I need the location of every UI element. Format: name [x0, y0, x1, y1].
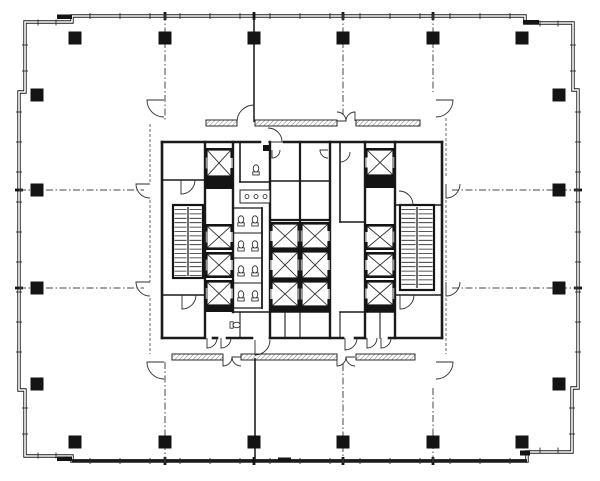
counterweight [297, 260, 299, 271]
elevator-door [365, 260, 367, 270]
door-swing [436, 362, 453, 379]
toilet-fixture [252, 291, 258, 301]
door-swing [147, 362, 164, 379]
door-swing [337, 357, 346, 366]
shaft-wall-poche [270, 308, 330, 312]
restroom-fixtures [230, 165, 270, 328]
toilet-fixture [252, 266, 258, 276]
door-swing [381, 338, 391, 348]
structural-column [31, 282, 44, 295]
structural-column [553, 184, 566, 197]
elevator-door [231, 158, 233, 168]
structural-column [516, 32, 529, 45]
facade-joint-mark [57, 457, 72, 462]
door-swing [436, 100, 453, 117]
elevator-door [328, 260, 330, 270]
structural-column [427, 32, 440, 45]
door-swing [207, 338, 217, 348]
wing-wall [255, 120, 337, 126]
elevator-door [328, 231, 330, 241]
structural-column [553, 282, 566, 295]
shaft-wall-poche [205, 307, 233, 312]
door-swing [237, 105, 254, 122]
structural-column [427, 436, 440, 449]
door-swing [446, 282, 460, 296]
elevator-door [270, 231, 272, 241]
structural-column [337, 32, 350, 45]
counterweight [301, 260, 303, 271]
door-swing [446, 184, 460, 198]
door-swing [337, 112, 346, 121]
toilet-fixture [252, 216, 258, 226]
wing-wall [206, 120, 237, 126]
structural-column [337, 436, 350, 449]
elevator-shaft [205, 280, 233, 307]
toilet-bowl [252, 291, 258, 298]
elevator-shaft [270, 250, 300, 280]
structural-column [31, 378, 44, 391]
structural-column [248, 436, 261, 449]
toilet-fixture [238, 241, 244, 251]
elevator-door [231, 232, 233, 242]
counterweight [297, 289, 299, 300]
toilet-fixture [252, 241, 258, 251]
elevator-shaft [205, 252, 233, 278]
toilet-bowl [238, 216, 244, 223]
structural-column [248, 32, 261, 45]
toilet-bowl [253, 165, 259, 172]
toilet-bowl [252, 266, 258, 273]
door-swing [320, 150, 328, 158]
door-swing [367, 338, 377, 348]
counterweight [392, 157, 394, 168]
door-swing [345, 338, 357, 350]
facade-joint-mark [520, 451, 530, 456]
elevator-shaft [270, 222, 300, 250]
door-swing [268, 128, 282, 142]
toilet-bowl [252, 216, 258, 223]
elevator-shaft [365, 148, 395, 177]
door-swing [223, 357, 232, 366]
door-swing [136, 282, 150, 296]
structural-column [516, 436, 529, 449]
elevator-shaft [300, 250, 330, 280]
door-swing [400, 295, 414, 309]
door-swing [221, 338, 231, 348]
elevator-door [231, 260, 233, 270]
structural-column [553, 89, 566, 102]
structural-column [159, 436, 172, 449]
toilet-bowl [238, 291, 244, 298]
elevator-door [231, 289, 233, 299]
counterweight [392, 232, 394, 243]
door-swing [147, 100, 164, 117]
door-swing [255, 340, 270, 355]
counterweight [392, 260, 394, 271]
exterior-wall-band [72, 459, 527, 462]
toilet-fixture [230, 322, 240, 328]
elevator-shaft [205, 224, 233, 250]
elevator-shaft [365, 280, 395, 307]
floor-plan [0, 0, 600, 481]
elevator-door [365, 289, 367, 299]
toilet-bowl [238, 266, 244, 273]
elevator-shaft [300, 222, 330, 250]
counterweight [297, 231, 299, 242]
structural-column [159, 32, 172, 45]
elevator-door [270, 260, 272, 270]
elevator-door [270, 289, 272, 299]
toilet-bowl [238, 241, 244, 248]
counterweight [392, 288, 394, 299]
shaft-wall-poche [205, 178, 233, 189]
toilet-fixture [253, 165, 259, 175]
door-swing [182, 295, 196, 309]
structural-column [553, 378, 566, 391]
wing-wall [356, 354, 415, 360]
structural-column [69, 436, 82, 449]
facade-joint-mark [57, 15, 72, 20]
door-swing [181, 180, 195, 194]
stair [400, 205, 434, 290]
facade-joint-mark [278, 458, 291, 463]
door-swing [136, 184, 150, 198]
sink-counter [240, 190, 270, 203]
elevator-shaft [365, 252, 395, 278]
counterweight [206, 158, 208, 169]
wing-wall [172, 354, 223, 360]
shaft-wall-poche [263, 145, 269, 151]
stair [173, 205, 203, 278]
elevator-door [365, 232, 367, 242]
structural-column [31, 184, 44, 197]
wing-wall [356, 120, 420, 126]
elevator-door [328, 289, 330, 299]
elevator-shaft [270, 280, 300, 308]
door-swing [346, 357, 355, 366]
floor-plan-svg [0, 0, 600, 481]
counterweight [206, 288, 208, 299]
toilet-bowl [252, 241, 258, 248]
facade-joint-mark [523, 20, 539, 25]
door-swing [346, 112, 355, 121]
elevator-door [365, 158, 367, 168]
structural-column [69, 32, 82, 45]
elevator-shaft [300, 280, 330, 308]
toilet-bowl [233, 322, 240, 328]
door-swing [399, 191, 413, 205]
counterweight [206, 232, 208, 243]
counterweight [301, 231, 303, 242]
toilet-fixture [238, 216, 244, 226]
toilet-fixture [238, 266, 244, 276]
door-swing [232, 357, 241, 366]
counterweight [301, 289, 303, 300]
elevator-shaft [205, 148, 233, 178]
door-swing [340, 152, 350, 162]
door-swing [272, 150, 280, 158]
counterweight [206, 260, 208, 271]
elevator-shaft [365, 224, 395, 250]
shaft-wall-poche [365, 177, 395, 188]
structural-column [31, 89, 44, 102]
shaft-wall-poche [365, 307, 395, 312]
toilet-fixture [238, 291, 244, 301]
demising-partitions [254, 18, 255, 460]
